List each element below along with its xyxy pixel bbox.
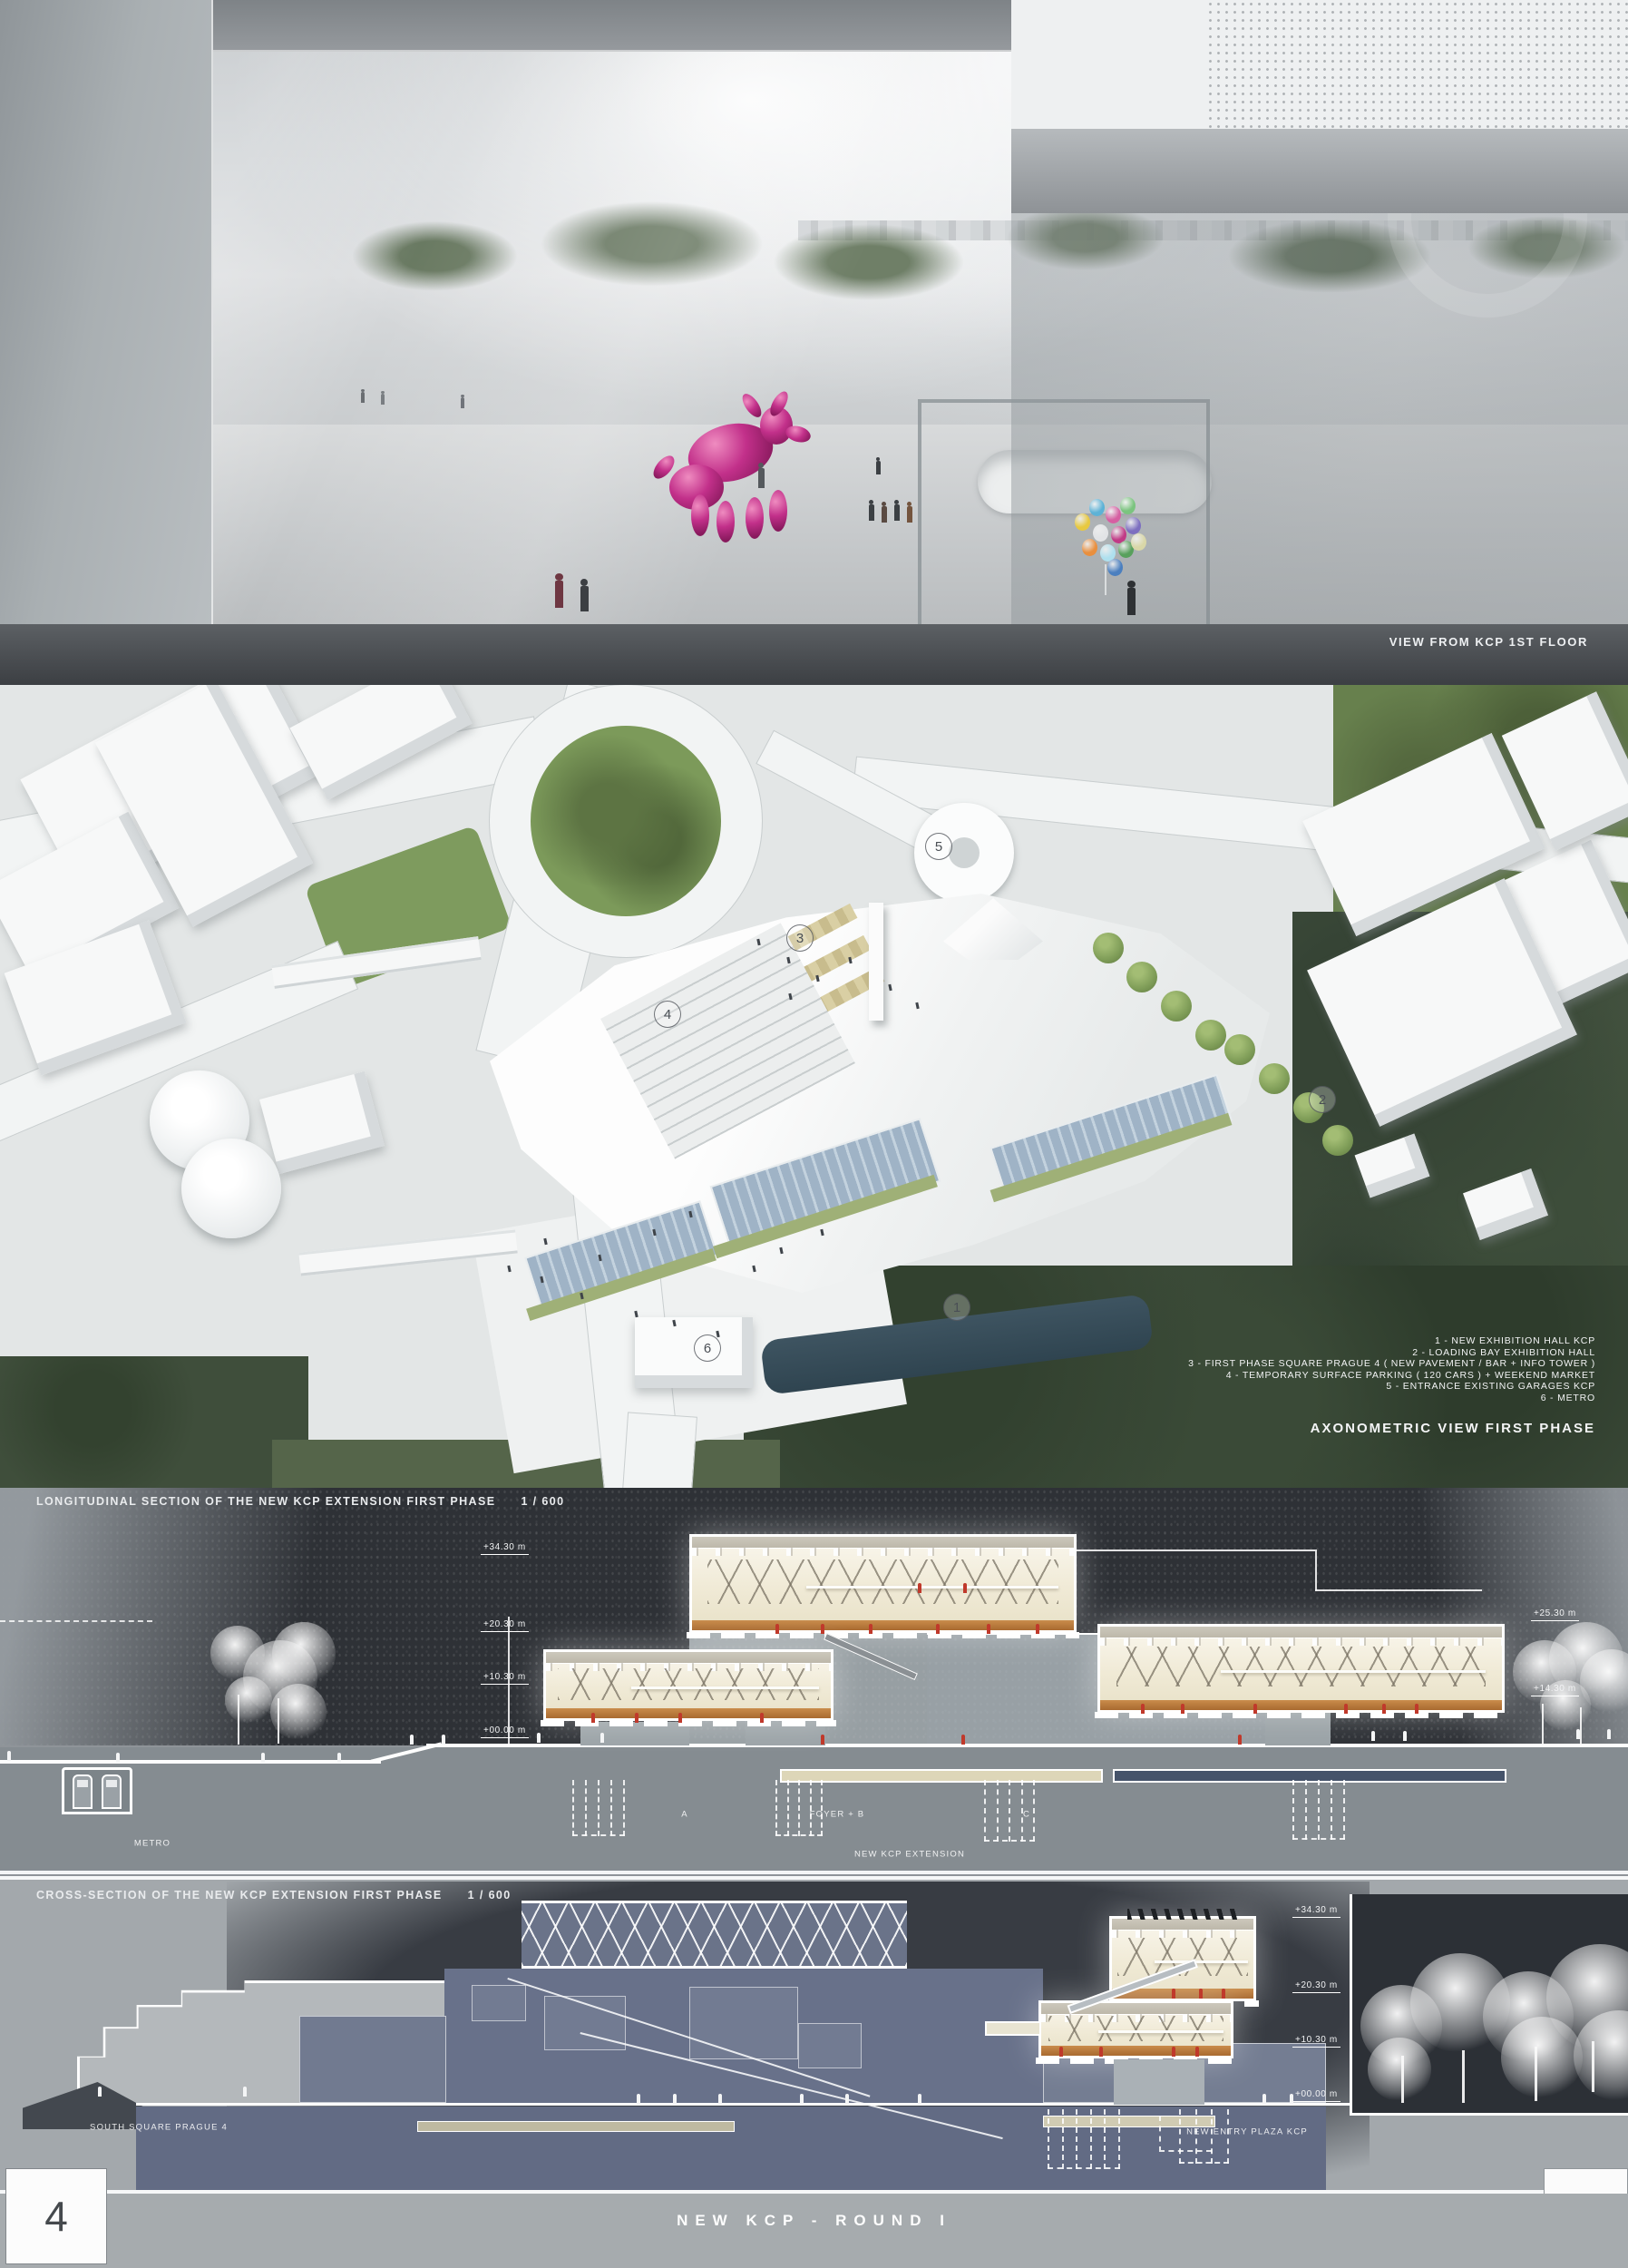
person-silhouette bbox=[1127, 588, 1136, 615]
person-silhouette bbox=[907, 506, 912, 523]
building bbox=[259, 1071, 385, 1174]
person-silhouette bbox=[555, 581, 563, 608]
person-head bbox=[876, 457, 880, 461]
axon-legend-line-3: 3 - FIRST PHASE SQUARE PRAGUE 4 ( NEW PA… bbox=[1188, 1358, 1595, 1370]
balloon bbox=[1107, 559, 1123, 576]
foyer-band bbox=[780, 1769, 1103, 1783]
tree-trunk bbox=[278, 1698, 279, 1744]
person-silhouette bbox=[580, 586, 589, 611]
extension-pier bbox=[1114, 2059, 1204, 2105]
kcp-left-wing bbox=[299, 2016, 446, 2103]
person-silhouette bbox=[461, 397, 464, 408]
sketch-tree bbox=[1501, 2017, 1583, 2098]
tree-trunk bbox=[1535, 2047, 1537, 2101]
balloon bbox=[1093, 524, 1108, 542]
balloon bbox=[1082, 539, 1097, 556]
hall-truss bbox=[1116, 1647, 1487, 1686]
lsection-scale: 1 / 600 bbox=[521, 1495, 564, 1508]
garage-ramp-hole bbox=[949, 837, 980, 868]
balloon-dog-leg bbox=[691, 494, 709, 536]
section-room bbox=[472, 1985, 526, 2021]
roof-fins bbox=[1127, 1909, 1242, 1920]
section-room bbox=[798, 2023, 862, 2068]
person-silhouette bbox=[381, 394, 385, 405]
section-room bbox=[544, 1996, 626, 2050]
metro-train-window bbox=[77, 1780, 88, 1787]
person-head bbox=[894, 500, 899, 504]
hall-ceiling-fins bbox=[1100, 1637, 1502, 1646]
exhibition-hall-section bbox=[1097, 1624, 1505, 1713]
balloon-dog-snout bbox=[784, 424, 812, 445]
hall-wood-floor bbox=[1041, 2046, 1231, 2056]
axon-caption: AXONOMETRIC VIEW FIRST PHASE bbox=[1311, 1421, 1595, 1436]
link-bridge bbox=[985, 2021, 1041, 2036]
exhibition-hall-section bbox=[689, 1534, 1077, 1633]
caption-strip bbox=[0, 624, 1628, 685]
board-title: NEW KCP - ROUND I bbox=[0, 2212, 1628, 2230]
tree-trunk bbox=[1401, 2056, 1404, 2103]
lsection-decor-layer bbox=[0, 1488, 1628, 1876]
beige-band bbox=[417, 2121, 735, 2132]
xsection-scale: 1 / 600 bbox=[468, 1889, 512, 1901]
hall-wood-floor bbox=[692, 1620, 1074, 1630]
tree-trunk bbox=[238, 1695, 239, 1745]
roundabout-green bbox=[531, 726, 721, 916]
render-view-panel: VIEW FROM KCP 1ST FLOOR bbox=[0, 0, 1628, 685]
tree bbox=[1259, 1063, 1290, 1094]
balloon bbox=[1089, 499, 1105, 516]
hall-truss bbox=[707, 1559, 1058, 1604]
metro-entrance-box bbox=[635, 1317, 753, 1388]
hall-footing bbox=[1095, 1712, 1507, 1718]
tree bbox=[1224, 1034, 1255, 1065]
balloon-dog-leg bbox=[769, 490, 787, 532]
blank-sheet bbox=[1544, 2168, 1628, 2194]
hall-wood-floor bbox=[546, 1708, 831, 1718]
hall-mezzanine bbox=[1221, 1670, 1486, 1673]
person-head bbox=[907, 502, 911, 506]
info-tower bbox=[869, 903, 883, 1021]
axon-legend-line-5: 5 - ENTRANCE EXISTING GARAGES KCP bbox=[1188, 1381, 1595, 1393]
balloon bbox=[1131, 533, 1146, 551]
hall-c-basement-band bbox=[1113, 1769, 1506, 1783]
person-head bbox=[869, 500, 873, 504]
tree-trunk bbox=[1542, 1704, 1544, 1745]
person-head bbox=[381, 391, 385, 394]
tree bbox=[1093, 933, 1124, 963]
kcp-truss-band bbox=[522, 1901, 907, 1969]
forest-bottom-left bbox=[0, 1356, 308, 1488]
xsection-title-text: CROSS-SECTION OF THE NEW KCP EXTENSION F… bbox=[36, 1889, 443, 1901]
person-silhouette bbox=[361, 392, 365, 403]
tree bbox=[1126, 962, 1157, 992]
hall-ceiling-fins bbox=[692, 1548, 1074, 1556]
road bbox=[623, 1413, 697, 1488]
render-decor-layer bbox=[0, 0, 1628, 685]
xsection-decor-layer bbox=[0, 1876, 1628, 2194]
balloon bbox=[1106, 506, 1121, 523]
person-silhouette bbox=[876, 461, 881, 474]
tree bbox=[1161, 991, 1192, 1022]
tree-trunk bbox=[1592, 2041, 1594, 2092]
hall-mezzanine bbox=[1098, 2030, 1223, 2033]
xsection-title: CROSS-SECTION OF THE NEW KCP EXTENSION F… bbox=[36, 1889, 512, 1901]
axon-legend-line-1: 1 - NEW EXHIBITION HALL KCP bbox=[1188, 1335, 1595, 1347]
lsection-title: LONGITUDINAL SECTION OF THE NEW KCP EXTE… bbox=[36, 1495, 564, 1508]
balloon bbox=[1075, 513, 1090, 531]
tree-trunk bbox=[1462, 2050, 1465, 2103]
axon-legend-line-6: 6 - METRO bbox=[1188, 1393, 1595, 1404]
footer-divider bbox=[0, 2190, 1628, 2194]
hall-mezzanine bbox=[1155, 1960, 1248, 1963]
section-room bbox=[689, 1987, 798, 2059]
person-head bbox=[1127, 581, 1136, 588]
hall-footing bbox=[687, 1632, 1079, 1638]
page-number-box: 4 bbox=[5, 2168, 107, 2264]
hall-wood-floor bbox=[1100, 1700, 1502, 1710]
cross-section-panel: CROSS-SECTION OF THE NEW KCP EXTENSION F… bbox=[0, 1876, 1628, 2194]
sketch-tree bbox=[1540, 1680, 1591, 1731]
hall-mezzanine bbox=[631, 1686, 819, 1689]
metro-train-window bbox=[106, 1780, 117, 1787]
axon-legend: 1 - NEW EXHIBITION HALL KCP2 - LOADING B… bbox=[1188, 1335, 1595, 1403]
hall-footing bbox=[541, 1720, 836, 1726]
person-head bbox=[461, 395, 464, 397]
tree-trunk bbox=[1580, 1707, 1582, 1745]
balloon-strings bbox=[1105, 564, 1106, 595]
person-silhouette bbox=[869, 504, 874, 521]
person-head bbox=[882, 502, 886, 506]
person-head bbox=[758, 463, 764, 468]
entry-dashed-corner bbox=[1159, 2116, 1212, 2152]
hall-ceiling-fins bbox=[1112, 1930, 1253, 1938]
balloon-dog-leg bbox=[717, 501, 735, 543]
view-caption: VIEW FROM KCP 1ST FLOOR bbox=[1389, 635, 1588, 649]
person-silhouette bbox=[758, 468, 765, 488]
page-number: 4 bbox=[44, 2192, 68, 2241]
balloon bbox=[1126, 517, 1141, 534]
lsection-title-text: LONGITUDINAL SECTION OF THE NEW KCP EXTE… bbox=[36, 1495, 495, 1508]
tree bbox=[1293, 1092, 1324, 1123]
person-head bbox=[580, 579, 588, 586]
person-head bbox=[555, 573, 563, 581]
balloon bbox=[1120, 497, 1136, 514]
axon-legend-line-4: 4 - TEMPORARY SURFACE PARKING ( 120 CARS… bbox=[1188, 1370, 1595, 1382]
hall-truss bbox=[558, 1668, 820, 1700]
hall-truss bbox=[1048, 2016, 1223, 2041]
tree bbox=[1195, 1020, 1226, 1051]
longitudinal-section-panel: LONGITUDINAL SECTION OF THE NEW KCP EXTE… bbox=[0, 1488, 1628, 1876]
balloon-dog-leg bbox=[746, 497, 764, 539]
person-silhouette bbox=[894, 504, 900, 521]
presentation-board: VIEW FROM KCP 1ST FLOOR 123456 1 - NEW E… bbox=[0, 0, 1628, 2268]
escalator bbox=[824, 1633, 918, 1680]
sketch-tree bbox=[225, 1677, 272, 1724]
sketch-tree bbox=[1368, 2038, 1431, 2101]
exhibition-hall-section bbox=[543, 1649, 833, 1721]
cylindrical-tower bbox=[181, 1139, 281, 1238]
person-silhouette bbox=[882, 506, 887, 523]
axon-legend-line-2: 2 - LOADING BAY EXHIBITION HALL bbox=[1188, 1347, 1595, 1359]
sketch-tree bbox=[272, 1622, 336, 1686]
tree bbox=[1322, 1125, 1353, 1156]
person-head bbox=[361, 389, 365, 392]
hall-mezzanine bbox=[806, 1586, 1058, 1589]
